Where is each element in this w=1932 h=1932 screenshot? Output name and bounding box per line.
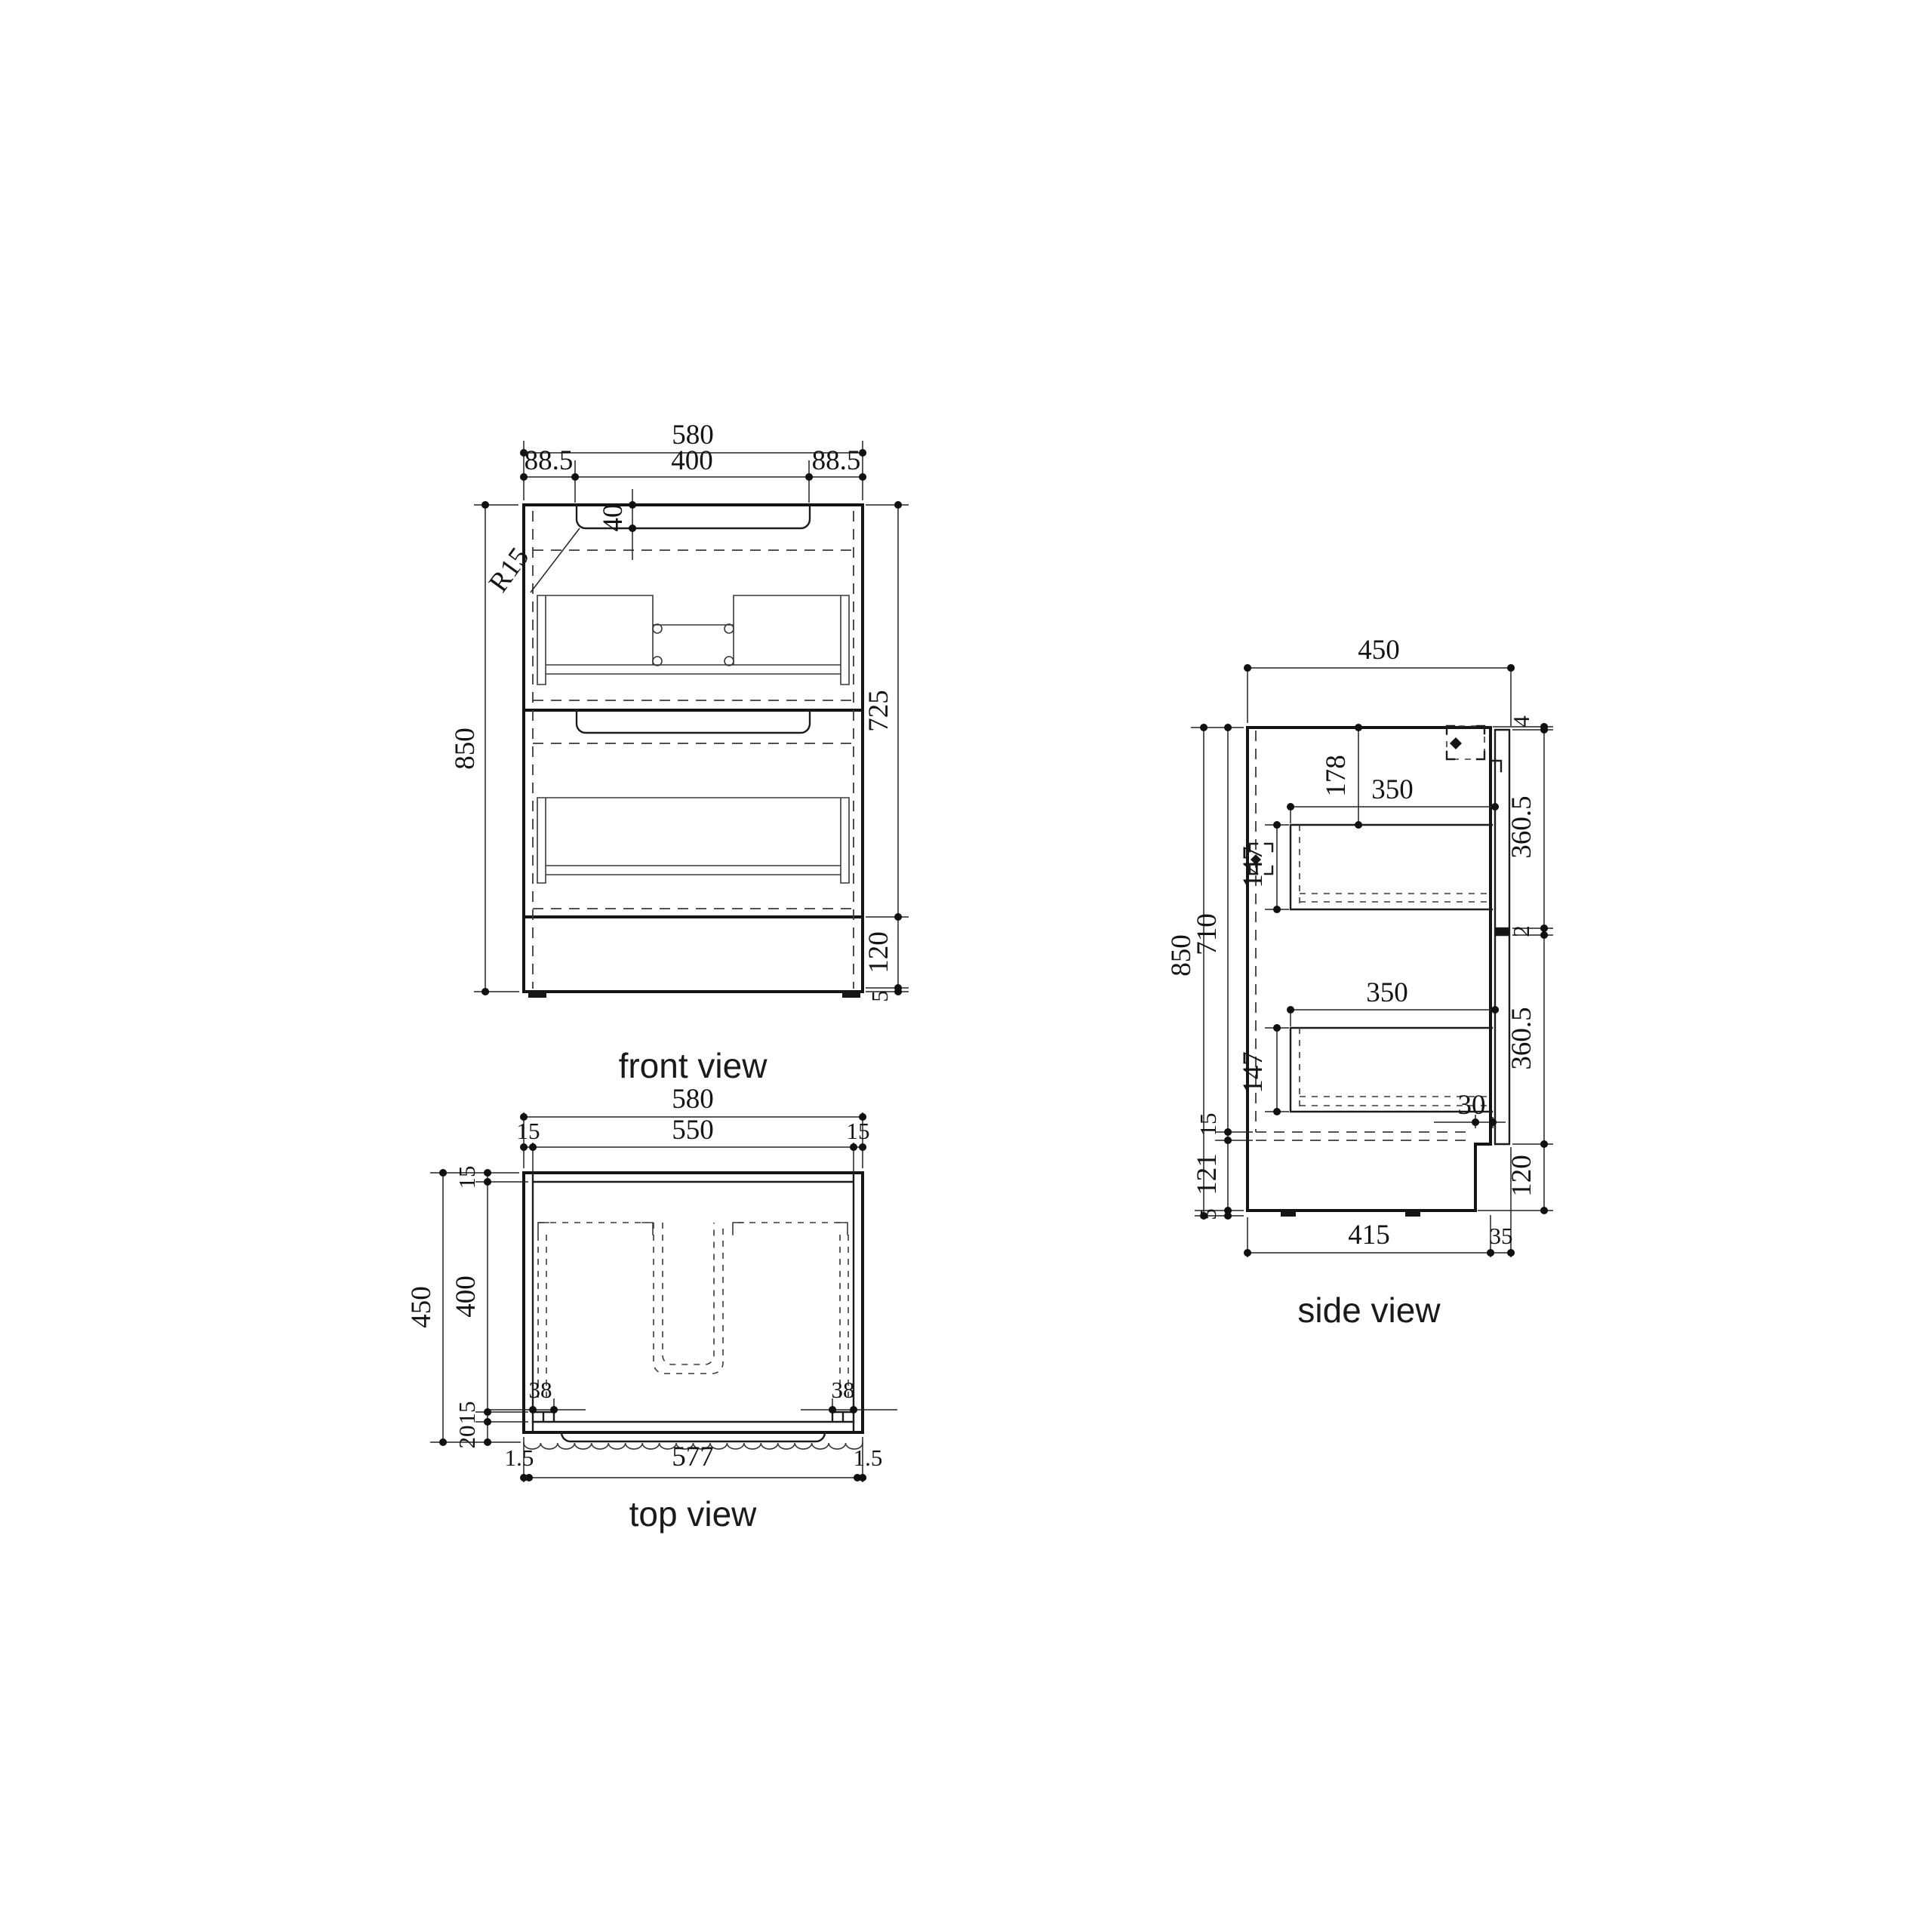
top-view-label: top view — [629, 1494, 758, 1534]
dim-top-edge-left: 1.5 — [505, 1444, 534, 1471]
side-upper-drawer-hidden — [1300, 825, 1492, 909]
front-view: 580 88.5 400 88.5 40 R15 850 725 120 5 f… — [450, 420, 909, 1085]
dim-top-front-panel: 20 — [454, 1426, 480, 1449]
front-cabinet-outline — [524, 505, 863, 992]
side-body-outline — [1247, 728, 1491, 1211]
dim-side-total-depth: 450 — [1358, 635, 1400, 666]
dim-front-left-offset: 88.5 — [525, 445, 574, 476]
dim-side-front-gap: 30 — [1458, 1090, 1486, 1121]
dim-top-front-width: 577 — [672, 1441, 714, 1472]
dim-side-foot-height: 5 — [1195, 1208, 1221, 1220]
dim-top-total-width: 580 — [672, 1084, 714, 1115]
dim-front-plinth-height: 120 — [863, 931, 894, 974]
dim-top-front-wall: 15 — [454, 1401, 480, 1425]
side-view-label: side view — [1297, 1291, 1441, 1330]
side-hidden-lines — [1256, 731, 1470, 1140]
dim-side-plinth-height: 120 — [1506, 1155, 1537, 1197]
dim-side-drawer-depth-upper: 350 — [1371, 774, 1414, 805]
dim-top-slide-left: 38 — [529, 1377, 552, 1403]
front-upper-drawer-internals — [537, 595, 849, 685]
side-bracket-top-diamond — [1450, 737, 1462, 749]
dim-side-drawer-top-offset: 178 — [1321, 755, 1352, 797]
dim-side-drawer-height-upper: 147 — [1238, 846, 1269, 888]
dim-side-top-gap: 4 — [1508, 715, 1534, 728]
dim-top-total-depth: 450 — [406, 1286, 437, 1328]
dim-top-slide-right: 38 — [832, 1377, 855, 1403]
dim-side-front-thickness: 35 — [1490, 1223, 1513, 1249]
dim-top-wall-left: 15 — [517, 1118, 540, 1144]
top-slide-blocks — [533, 1412, 854, 1422]
top-sink-outline — [654, 1223, 723, 1374]
side-view: 450 178 350 147 350 147 30 4 360.5 2 360… — [1166, 635, 1553, 1330]
dim-top-inner-depth: 400 — [451, 1275, 481, 1318]
dim-top-edge-right: 1.5 — [854, 1444, 883, 1471]
dim-side-plinth-inner: 121 — [1192, 1153, 1223, 1195]
top-dimension-points — [443, 1117, 863, 1478]
side-upper-drawer-box — [1291, 825, 1492, 909]
dim-top-wall-right: 15 — [847, 1118, 870, 1144]
dim-front-total-height: 850 — [450, 728, 481, 770]
dim-side-bottom-panel: 15 — [1195, 1113, 1221, 1137]
dim-side-front-lower: 360.5 — [1506, 1007, 1537, 1069]
dim-front-groove-width: 400 — [671, 445, 713, 476]
dim-top-back-wall: 15 — [454, 1166, 480, 1189]
dim-side-body-depth: 415 — [1348, 1220, 1390, 1251]
dim-front-foot-height: 5 — [866, 990, 893, 1002]
dim-top-inner-width: 550 — [672, 1115, 714, 1146]
top-dimension-lines — [430, 1112, 897, 1482]
top-outline — [524, 1173, 863, 1432]
dim-front-upper-height: 725 — [863, 690, 894, 732]
technical-drawing: 580 88.5 400 88.5 40 R15 850 725 120 5 f… — [0, 0, 1932, 1932]
side-dimension-lines — [1191, 668, 1553, 1257]
top-view: 580 15 550 15 450 400 15 15 20 38 38 1.5… — [406, 1084, 897, 1534]
dim-side-between-gap: 2 — [1508, 925, 1534, 937]
side-dimension-points — [1204, 668, 1544, 1253]
front-view-label: front view — [619, 1046, 768, 1085]
front-handle-grooves — [577, 505, 810, 733]
top-bracket-corners — [538, 1223, 848, 1235]
dim-front-groove-depth: 40 — [598, 504, 629, 532]
dim-side-drawer-height-lower: 147 — [1238, 1051, 1269, 1094]
front-dimension-points — [485, 453, 898, 992]
dim-side-carcass-height: 710 — [1192, 913, 1223, 955]
top-inner-walls — [533, 1173, 854, 1432]
dim-side-front-upper: 360.5 — [1506, 795, 1537, 858]
dim-front-right-offset: 88.5 — [812, 445, 861, 476]
side-bracket-top-corners — [1447, 726, 1501, 771]
dim-side-drawer-depth-lower: 350 — [1366, 977, 1408, 1008]
drawing-page: 580 88.5 400 88.5 40 R15 850 725 120 5 f… — [0, 0, 1932, 1932]
dim-front-corner-radius: R15 — [483, 542, 535, 598]
front-lower-drawer-internals — [537, 798, 849, 883]
